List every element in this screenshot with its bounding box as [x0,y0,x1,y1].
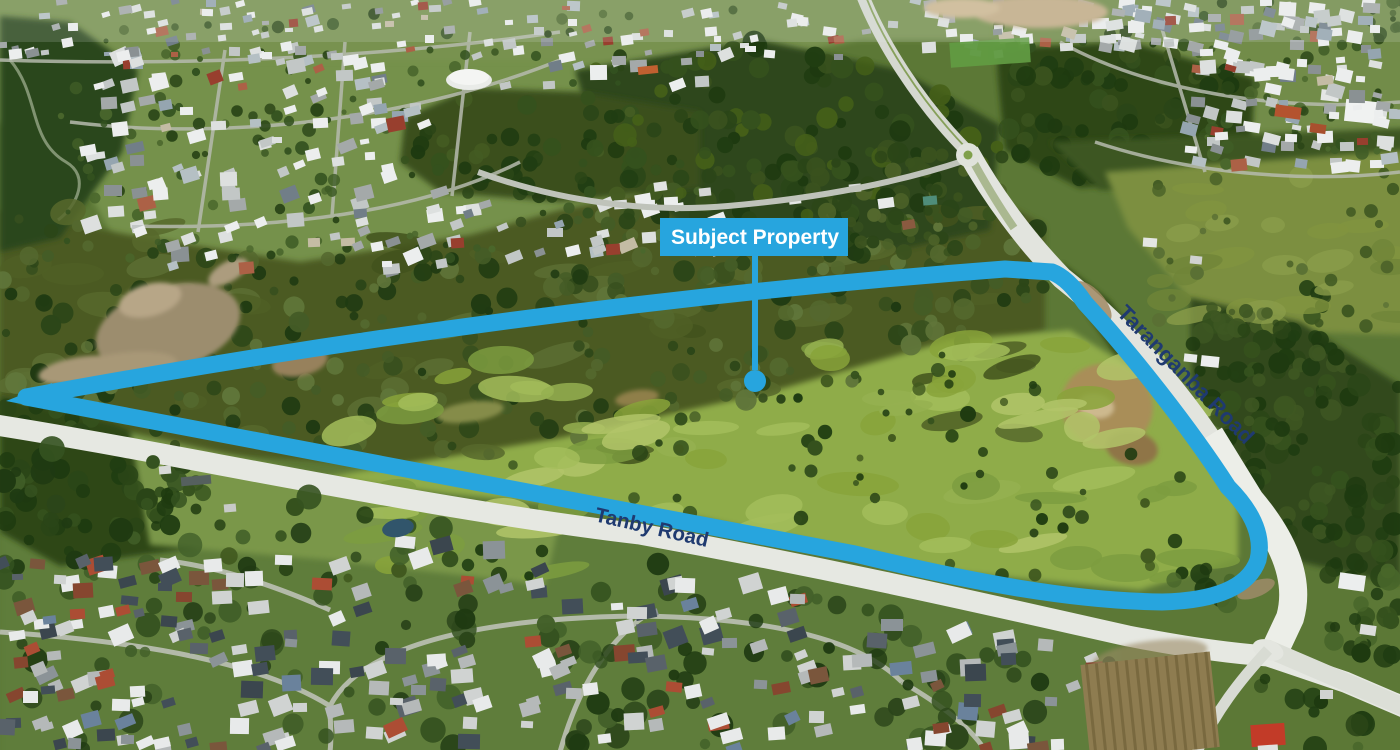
svg-text:Subject Property: Subject Property [671,226,839,249]
